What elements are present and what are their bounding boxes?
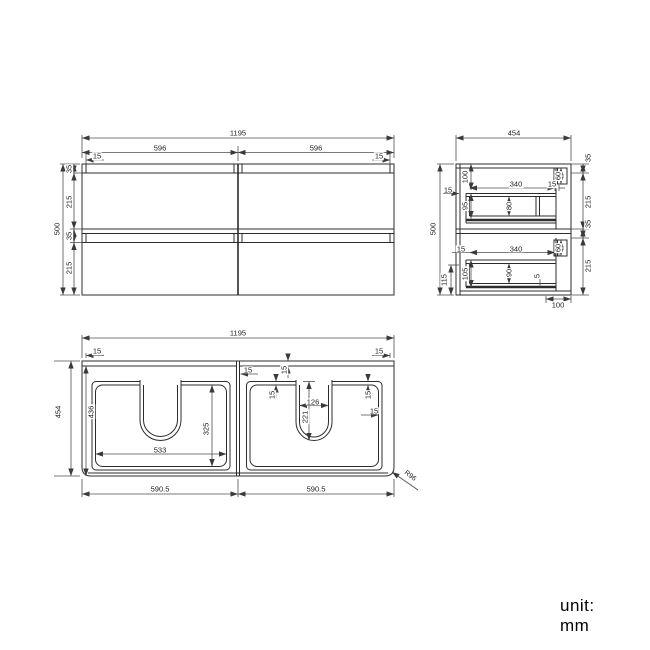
dim-pv-bottom-half-left: 590.5 [150, 485, 171, 493]
dim-fv-half-left: 596 [153, 144, 168, 152]
dim-pv-cutout-width: 126 [306, 398, 321, 406]
dim-sv-box-depth-top: 95 [461, 201, 469, 211]
dim-fv-half-right: 596 [309, 144, 324, 152]
dim-pv-front-rail: 15 [280, 365, 288, 375]
dim-sv-bottom-offset: 115 [440, 273, 448, 287]
dim-sv-top-offset: 100 [461, 170, 469, 185]
dim-sv-bottom-gap: 5 [533, 273, 541, 279]
plan-view-geometry [54, 335, 418, 497]
dim-sv-box-depth-bottom: 105 [461, 267, 469, 282]
dim-pv-edge-right: 15 [374, 347, 384, 355]
dim-sv-inner-width-bottom: 340 [509, 245, 524, 253]
dim-pv-cutout-gap-right: 15 [364, 390, 372, 400]
dim-sv-back-gap-bottom: 15 [456, 245, 466, 253]
dim-pv-depth-total: 454 [54, 405, 62, 420]
dim-sv-bottom-depth: 100 [551, 301, 566, 309]
dim-fv-seg-drawer2: 215 [65, 261, 73, 276]
dim-pv-bottom-half-right: 590.5 [306, 485, 327, 493]
technical-drawing-page: 1195 596 596 15 15 500 35 215 35 215 454… [0, 0, 650, 650]
dim-fv-seg-mid-rail: 35 [65, 231, 73, 241]
dim-pv-total-width: 1195 [229, 329, 247, 337]
dim-pv-cutout-gap-left: 15 [268, 390, 276, 400]
unit-label: unit: mm [560, 596, 620, 636]
dim-sv-inner-height-bottom: 90 [505, 268, 513, 278]
dim-pv-basin-depth: 325 [202, 422, 210, 437]
dim-sv-seg-drawer1: 215 [584, 195, 592, 210]
dim-fv-edge-left: 15 [92, 152, 102, 160]
dim-sv-height: 500 [429, 222, 437, 237]
drawing-linework [0, 0, 650, 650]
dim-pv-depth-inner: 436 [87, 405, 95, 420]
dim-pv-edge-left: 15 [92, 347, 102, 355]
dim-sv-inner-height-top: 80 [505, 201, 513, 211]
dim-sv-handle-top: 60 [554, 171, 562, 181]
dim-pv-basin-width: 533 [153, 446, 168, 454]
dim-sv-seg-drawer2: 215 [584, 259, 592, 274]
dim-sv-front-gap-top: 15 [547, 180, 557, 188]
dim-fv-seg-top-rail: 35 [65, 164, 73, 174]
dim-fv-edge-right: 15 [374, 152, 384, 160]
dim-sv-seg-mid: 35 [584, 219, 592, 229]
dim-fv-height: 500 [53, 222, 61, 237]
dim-pv-divider-gap: 15 [243, 366, 253, 374]
dim-pv-side-wall: 15 [369, 407, 379, 415]
dim-sv-seg-top: 35 [584, 153, 592, 163]
dim-sv-back-gap-top: 15 [443, 186, 453, 194]
dim-sv-inner-width-top: 340 [509, 180, 524, 188]
dim-fv-seg-drawer1: 215 [65, 195, 73, 210]
dim-fv-total-width: 1195 [229, 129, 247, 137]
dim-pv-cutout-depth: 221 [301, 410, 309, 425]
dim-sv-handle-bottom: 60 [554, 243, 562, 253]
dim-sv-total-depth: 454 [507, 129, 522, 137]
front-view-geometry [60, 135, 394, 295]
